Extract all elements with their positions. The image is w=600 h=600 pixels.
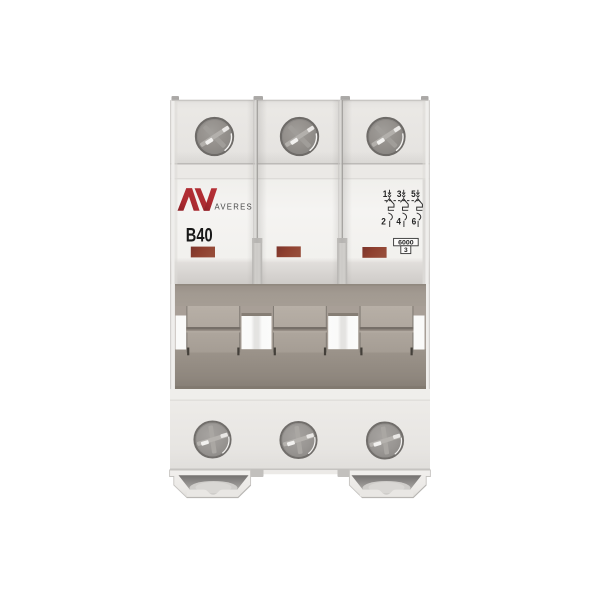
svg-text:4: 4 <box>396 216 401 226</box>
svg-text:2: 2 <box>381 216 386 226</box>
svg-text:5: 5 <box>411 189 416 199</box>
svg-text:6: 6 <box>412 216 417 226</box>
svg-text:1: 1 <box>383 189 388 199</box>
svg-text:6000: 6000 <box>398 239 414 246</box>
svg-text:3: 3 <box>397 189 402 199</box>
svg-text:AVERES: AVERES <box>215 203 254 212</box>
svg-text:B40: B40 <box>186 226 213 247</box>
svg-text:3: 3 <box>404 247 408 254</box>
